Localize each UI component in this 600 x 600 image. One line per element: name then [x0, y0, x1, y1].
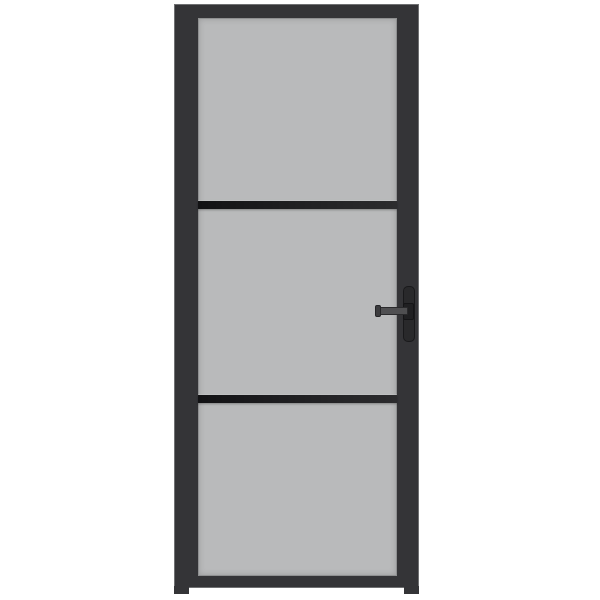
handle-lever	[377, 307, 408, 315]
glazing-bar-upper	[198, 201, 397, 209]
door-foot-left	[174, 586, 189, 594]
product-photo	[0, 0, 600, 600]
glazing-bar-lower	[198, 395, 397, 403]
door-glass	[198, 18, 397, 576]
door	[174, 4, 419, 588]
handle-lever-cap	[375, 305, 381, 317]
door-foot-right	[404, 586, 419, 594]
